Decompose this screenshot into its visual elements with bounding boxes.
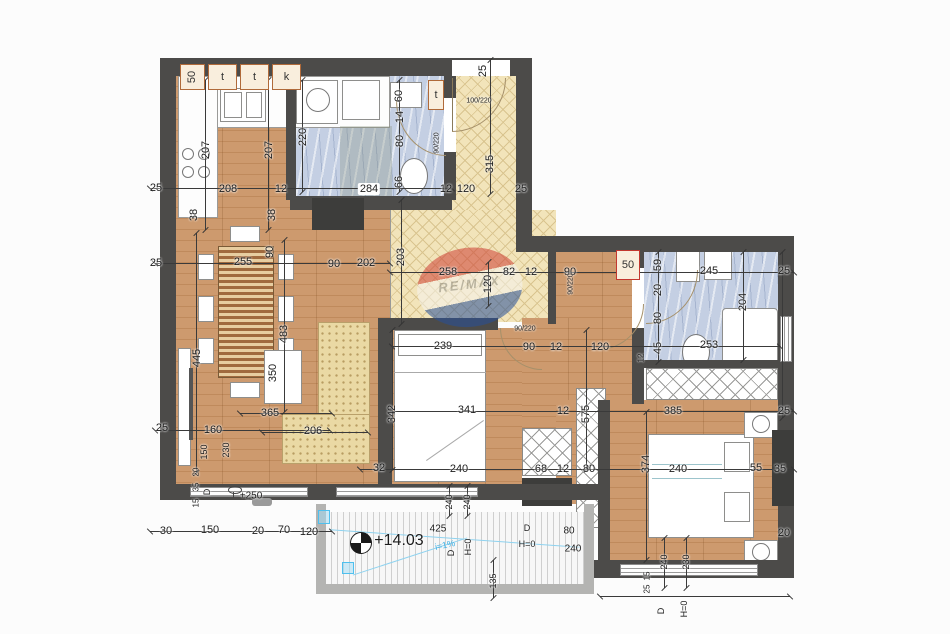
dimension-label: 230 (221, 442, 231, 457)
dimension-label: 284 (358, 183, 380, 195)
floor-plan: RE/MAX 50ttkt50 252081228412207207220383… (0, 0, 950, 634)
dimension-label: 239 (434, 340, 452, 352)
dimension-label: 100/220 (466, 98, 491, 105)
dimension-label: H=0 (463, 539, 473, 556)
dimension-label: +250 (240, 491, 263, 502)
dimension-label: 204 (737, 293, 749, 311)
dimension-label: 80 (394, 135, 406, 147)
dimension-label: 25 (643, 585, 652, 594)
dimension-label: 60 (393, 90, 405, 102)
dimension-label: 255 (234, 256, 252, 268)
dimension-label: 150 (199, 444, 209, 459)
dimension-label: 25 (477, 65, 489, 77)
dimension-label: 55 (750, 462, 762, 474)
dimension-label: 120 (457, 183, 475, 195)
dimension-label: 15 (192, 499, 201, 508)
dimension-label: 240 (444, 494, 454, 509)
dimension-label: 315 (484, 155, 496, 173)
dimension-label: 35 (192, 483, 201, 492)
dimension-label: 202 (357, 257, 375, 269)
dimension-label: 240 (450, 463, 468, 475)
dimension-label: 25 (778, 265, 790, 277)
dimension-label: 135 (488, 573, 498, 588)
dimension-label: 120 (300, 526, 318, 538)
dimension-label: 240 (565, 544, 582, 555)
dimension-label: 14 (394, 111, 406, 123)
dimension-label: D (446, 550, 456, 557)
dimension-label: 425 (430, 524, 447, 535)
dimension-label: 90/220 (434, 132, 441, 153)
dimension-label: 253 (700, 339, 718, 351)
dimension-label: 90/220 (568, 273, 575, 294)
dimension-label: 90 (523, 341, 535, 353)
dimension-label: +14.03 (374, 532, 423, 550)
dimension-label: 80 (583, 463, 595, 475)
dimension-label: 32 (373, 462, 385, 474)
dimension-label: 208 (219, 183, 237, 195)
dimension-label: 80 (652, 312, 664, 324)
dimension-label: D (524, 523, 531, 533)
dimension-label: 220 (297, 128, 309, 146)
dimension-label: 25 (150, 182, 162, 194)
dimension-label: 68 (535, 463, 547, 475)
dimension-label: 15 (643, 572, 652, 581)
dimension-label: 385 (664, 405, 682, 417)
dimension-label: 445 (191, 349, 203, 367)
dimension-label: 374 (640, 455, 652, 473)
dimension-label: 240 (659, 554, 669, 569)
dimension-label: 20 (778, 527, 790, 539)
dimension-label: 20 (252, 525, 264, 537)
dimension-label: 12 (557, 463, 569, 475)
dimension-label: D (202, 489, 212, 496)
dimension-label: 25 (778, 405, 790, 417)
dimension-label: 59 (652, 259, 664, 271)
dimension-label: 12 (275, 183, 287, 195)
dimension-label: 240 (462, 494, 472, 509)
dimension-label: 203 (395, 248, 407, 266)
dimension-label: 25 (156, 422, 168, 434)
dimension-label: 206 (304, 425, 322, 437)
dimension-label: 365 (261, 407, 279, 419)
dimension-label: 38 (266, 209, 278, 221)
dimension-label: 120 (591, 341, 609, 353)
dimension-labels-layer: 25208122841220720722038386014806625100/2… (0, 0, 950, 634)
dimension-label: 342 (386, 405, 398, 423)
dimension-label: 258 (439, 266, 457, 278)
dimension-label: 483 (278, 325, 290, 343)
dimension-label: 30 (160, 525, 172, 537)
dimension-label: 12 (440, 183, 452, 195)
dimension-label: 207 (263, 141, 275, 159)
dimension-label: 80 (563, 526, 574, 537)
dimension-label: 20 (652, 284, 664, 296)
dimension-label: 90/220 (514, 326, 535, 333)
dimension-label: 12 (525, 266, 537, 278)
dimension-label: 207 (200, 141, 212, 159)
dimension-label: D (656, 608, 666, 615)
dimension-label: 150 (201, 524, 219, 536)
dimension-label: 70 (278, 524, 290, 536)
dimension-label: 120 (482, 275, 494, 293)
dimension-label: 82 (503, 266, 515, 278)
dimension-label: 240 (669, 463, 687, 475)
dimension-label: 35 (774, 463, 786, 475)
dimension-label: 12 (557, 405, 569, 417)
dimension-label: H=0 (679, 601, 689, 618)
dimension-label: 12 (550, 341, 562, 353)
dimension-label: 38 (188, 209, 200, 221)
dimension-label: 575 (580, 405, 592, 423)
dimension-label: 12 (637, 354, 646, 363)
dimension-label: 25 (150, 257, 162, 269)
dimension-label: 66 (393, 176, 405, 188)
dimension-label: 160 (204, 424, 222, 436)
dimension-label: 350 (267, 364, 279, 382)
dimension-label: 90 (328, 258, 340, 270)
dimension-label: 25 (515, 183, 527, 195)
dimension-label: 245 (700, 265, 718, 277)
dimension-label: H=0 (519, 539, 536, 549)
dimension-label: 341 (458, 404, 476, 416)
dimension-label: 230 (681, 554, 691, 569)
dimension-label: 45 (652, 342, 664, 354)
dimension-label: 20 (192, 468, 201, 477)
dimension-label: 90 (264, 246, 276, 258)
